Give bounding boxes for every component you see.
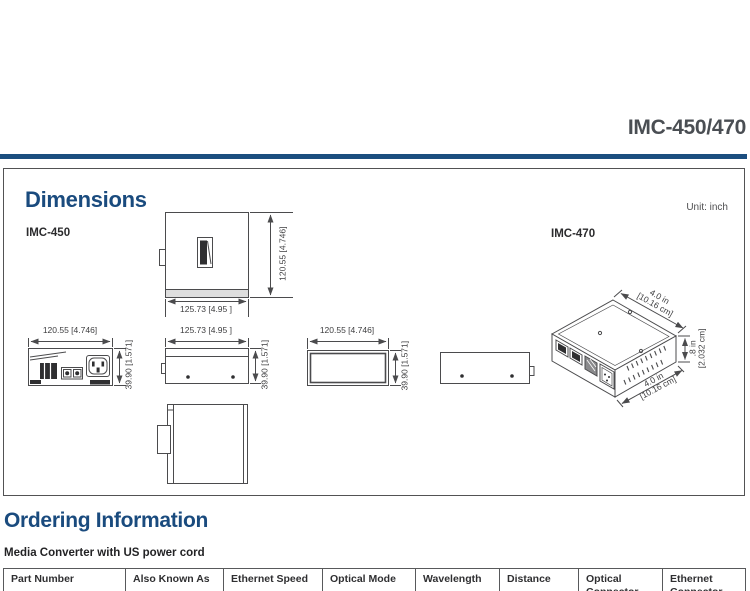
dim-sideview-width: 125.73 [4.95 ]	[166, 326, 246, 335]
ordering-subtitle: Media Converter with US power cord	[4, 547, 205, 559]
model-label-imc470: IMC-470	[551, 228, 595, 240]
unit-label: Unit: inch	[686, 202, 728, 213]
col-part-number: Part Number	[4, 569, 126, 591]
col-optical-connector: Optical Connector	[579, 569, 663, 591]
header-rule	[0, 154, 747, 159]
dim-sideview-height: 39.90 [1.571]	[260, 325, 269, 405]
dim-rearview-width: 120.55 [4.746]	[307, 326, 387, 335]
table-header-row: Part Number Also Known As Ethernet Speed…	[4, 569, 746, 591]
page-title: IMC-450/470	[628, 116, 746, 140]
dimensions-heading: Dimensions	[25, 187, 147, 213]
dim-frontview-height: 39.90 [1.571]	[124, 325, 133, 405]
ordering-heading: Ordering Information	[4, 509, 208, 533]
dim-topview-height: 120.55 [4.746]	[278, 214, 287, 294]
ordering-table: Part Number Also Known As Ethernet Speed…	[3, 568, 746, 591]
col-wavelength: Wavelength	[416, 569, 500, 591]
model-label-imc450: IMC-450	[26, 227, 70, 239]
col-ethernet-connector: Ethernet Connector	[663, 569, 746, 591]
dim-imc470-height: .8 in [2.032 cm]	[689, 316, 708, 380]
dim-frontview-width: 120.55 [4.746]	[30, 326, 110, 335]
dim-rearview-height: 39.90 [1.571]	[400, 326, 409, 406]
col-distance: Distance	[500, 569, 579, 591]
col-ethernet-speed: Ethernet Speed	[224, 569, 323, 591]
datasheet-page: IMC-450/470 Dimensions Unit: inch IMC-45…	[0, 0, 750, 591]
col-also-known-as: Also Known As	[126, 569, 224, 591]
dim-topview-width: 125.73 [4.95 ]	[166, 305, 246, 314]
col-optical-mode: Optical Mode	[323, 569, 416, 591]
